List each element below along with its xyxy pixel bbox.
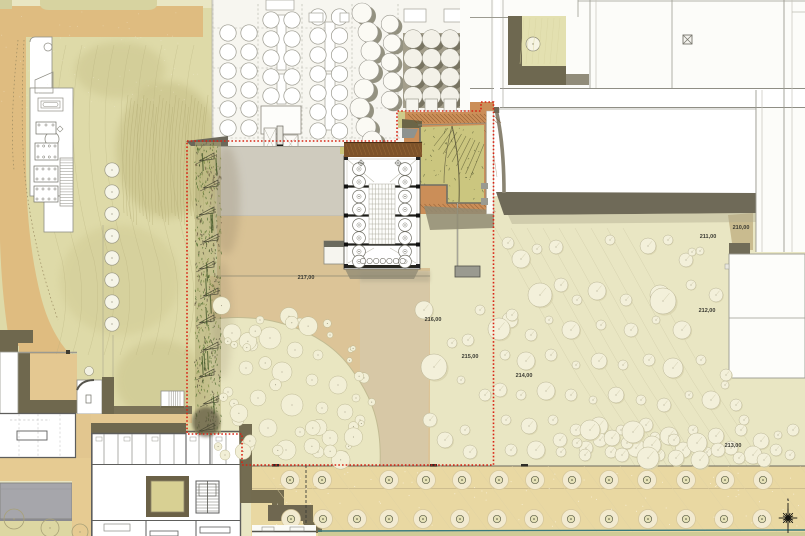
svg-text:211,00: 211,00 — [700, 234, 717, 240]
svg-text:213,00: 213,00 — [725, 443, 742, 449]
svg-text:215,00: 215,00 — [462, 354, 479, 360]
svg-text:216,00: 216,00 — [425, 317, 442, 323]
svg-text:217,00: 217,00 — [298, 275, 315, 281]
svg-text:210,00: 210,00 — [733, 225, 750, 231]
svg-text:212,00: 212,00 — [699, 308, 716, 314]
svg-text:214,00: 214,00 — [516, 373, 533, 379]
